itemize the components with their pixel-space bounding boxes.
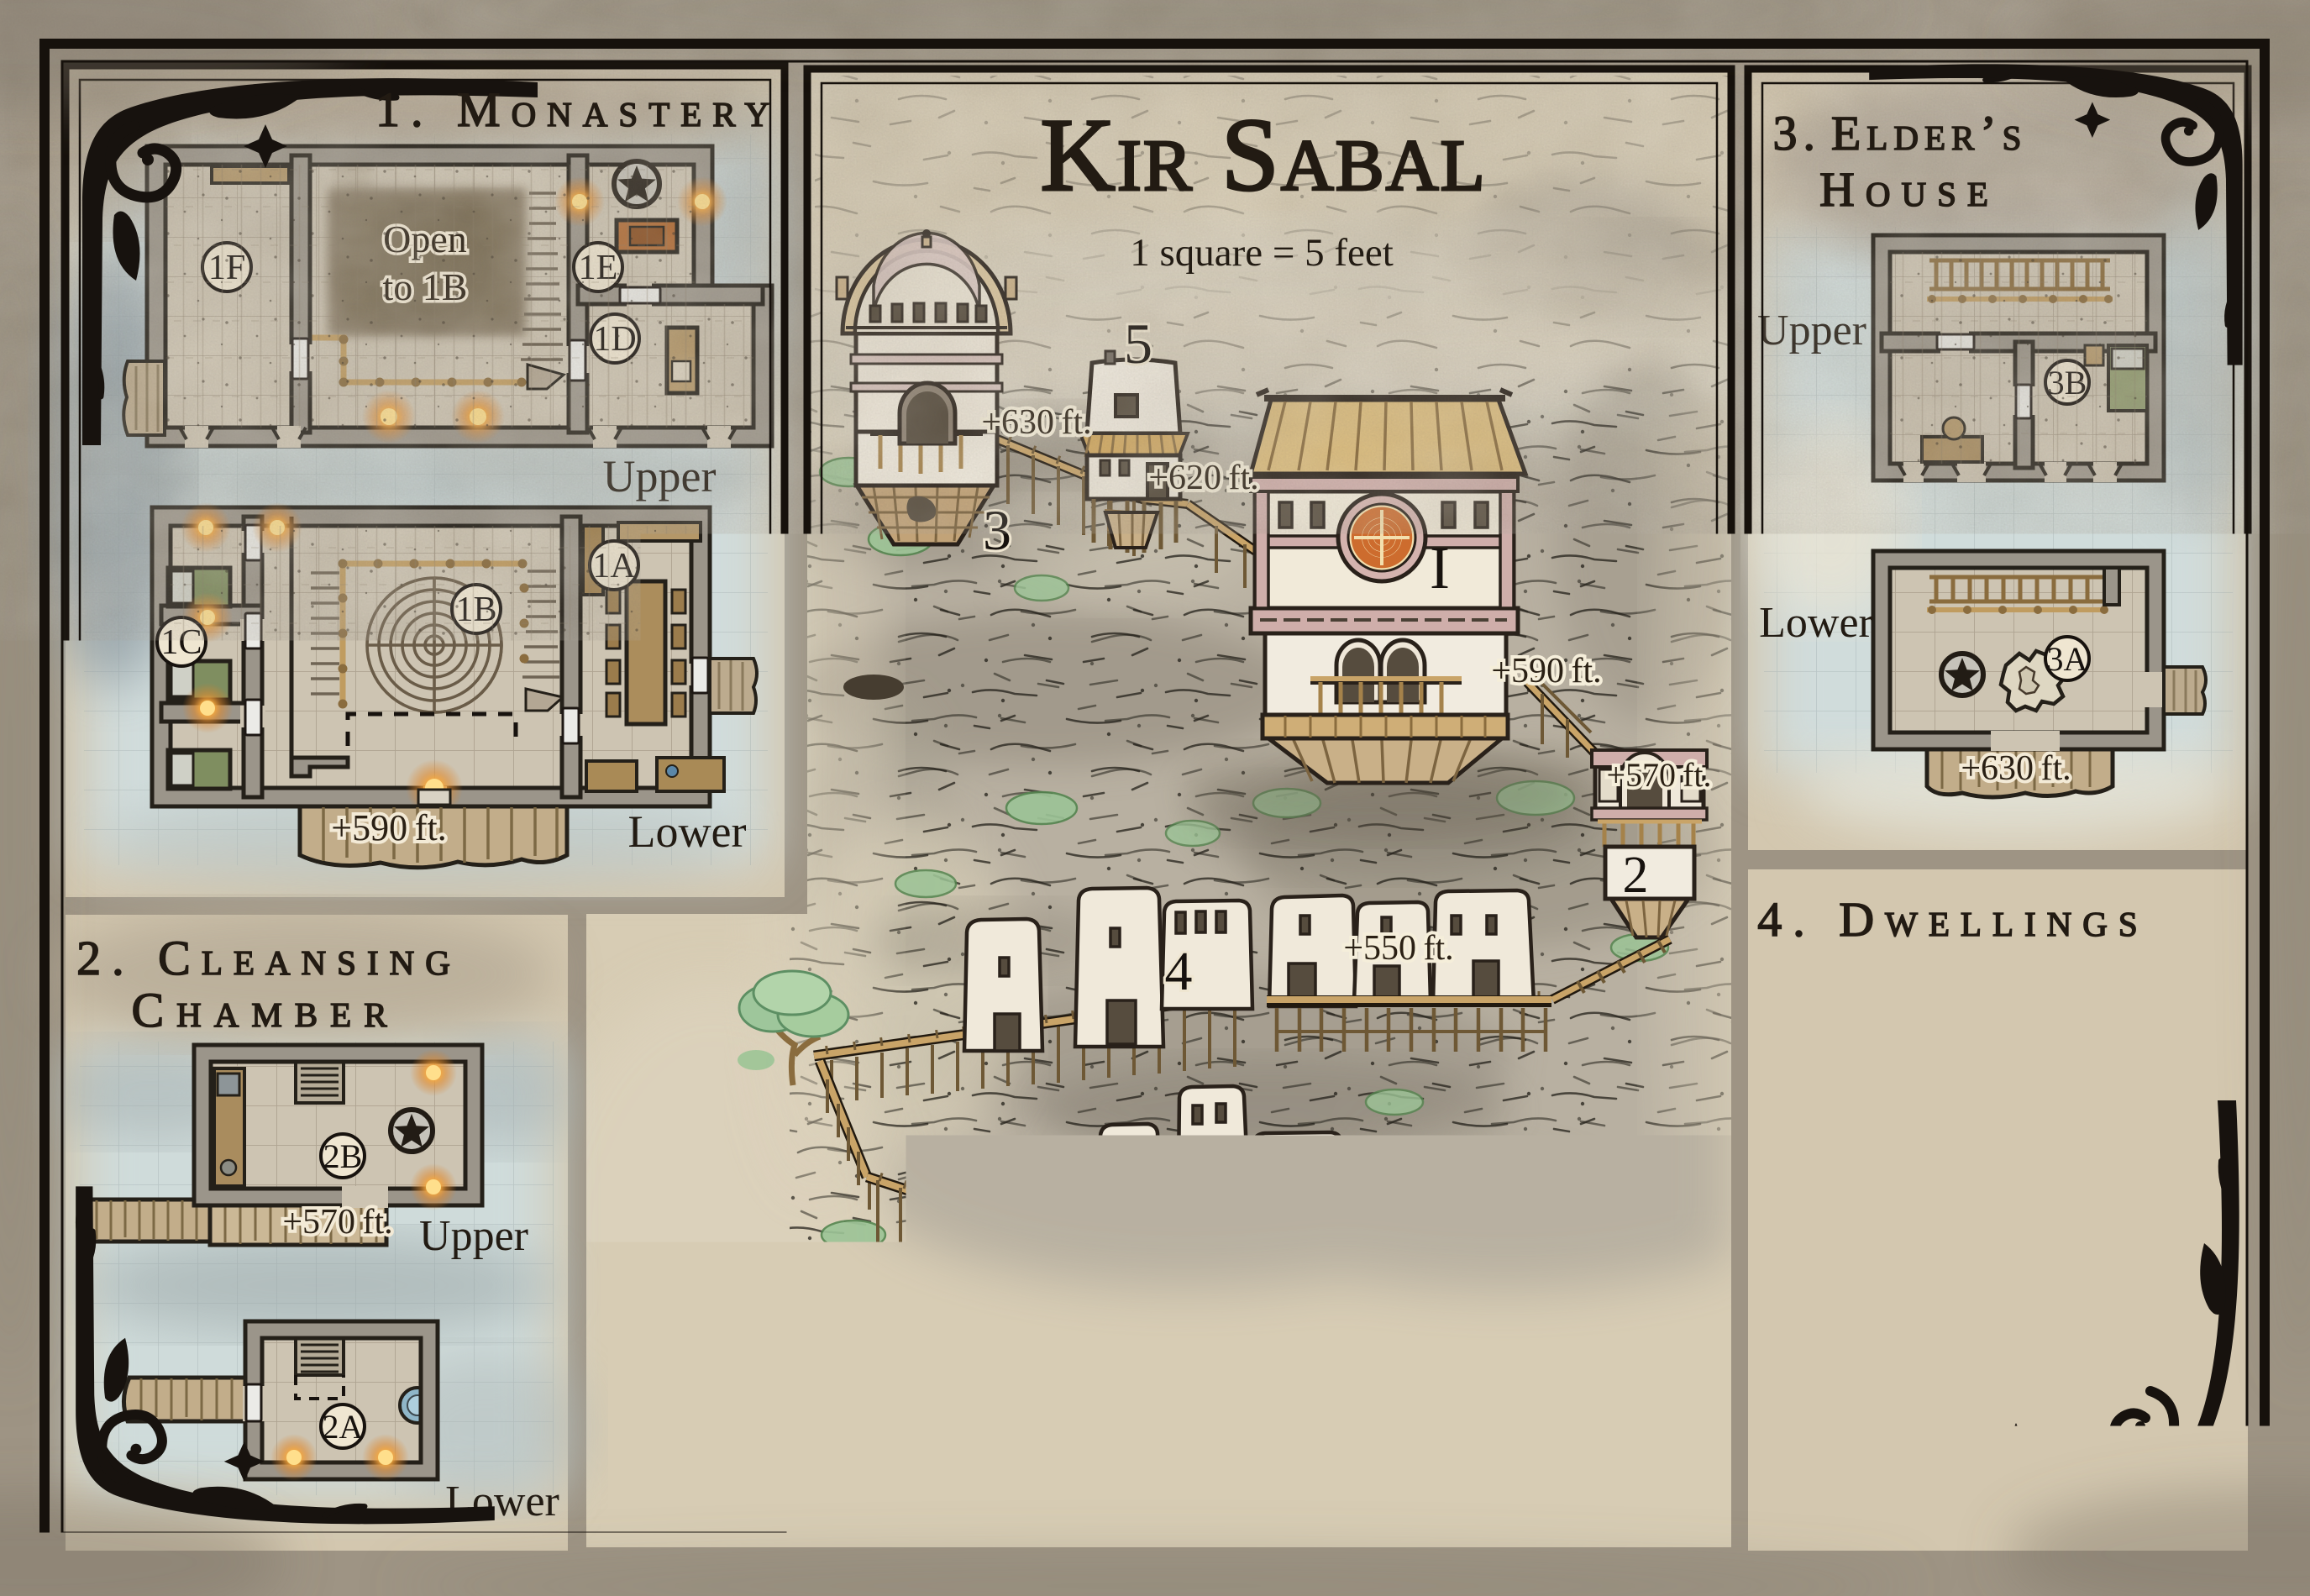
svg-text:1. Monastery: 1. Monastery bbox=[375, 82, 780, 137]
svg-text:1 square = 5 feet: 1 square = 5 feet bbox=[1130, 231, 1394, 275]
svg-text:Chamber: Chamber bbox=[131, 983, 399, 1037]
svg-text:House: House bbox=[1819, 162, 1999, 217]
svg-text:Kir Sabal: Kir Sabal bbox=[1040, 97, 1486, 213]
svg-text:3. Elder’s: 3. Elder’s bbox=[1773, 106, 2028, 160]
svg-text:4. Dwellings: 4. Dwellings bbox=[1757, 892, 2148, 947]
svg-text:2. Cleansing: 2. Cleansing bbox=[76, 931, 461, 985]
